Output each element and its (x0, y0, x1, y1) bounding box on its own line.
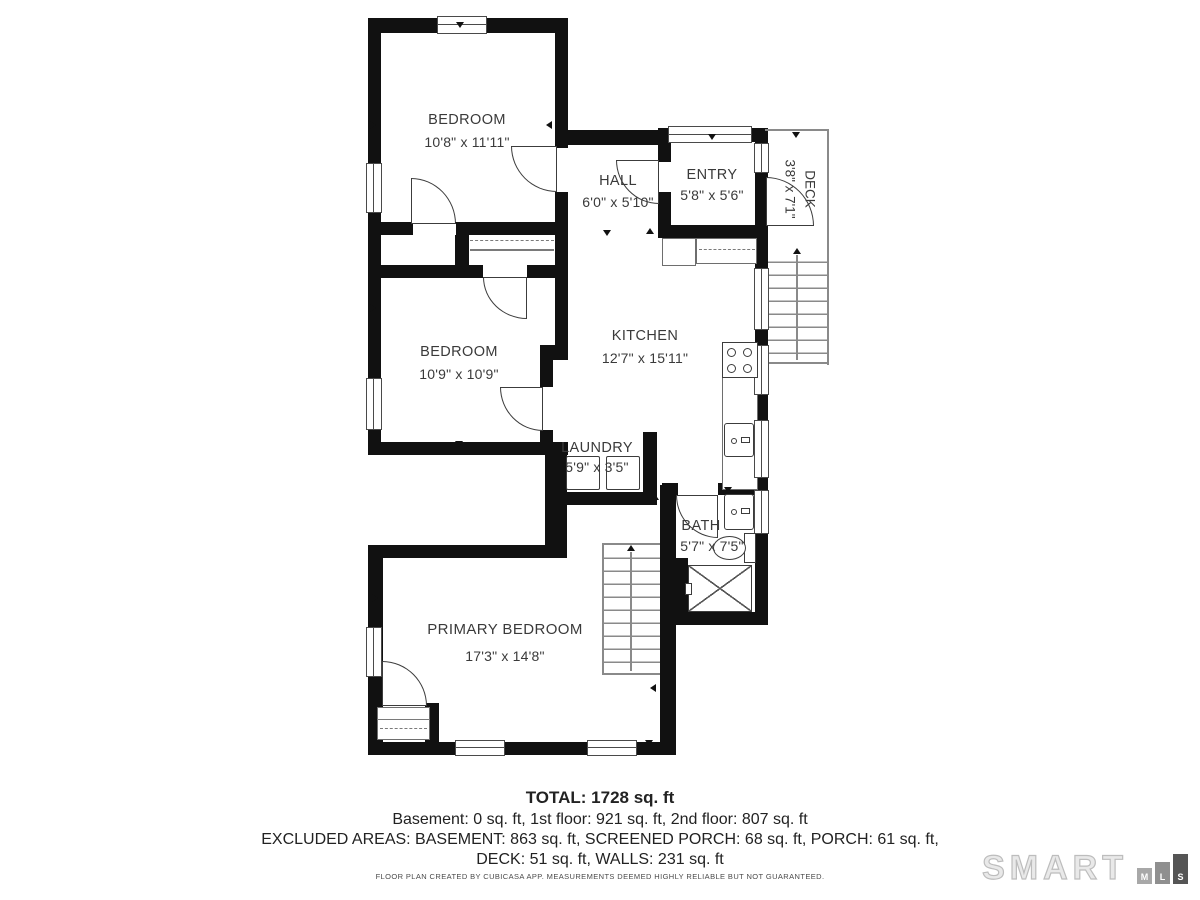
wall-segment (540, 360, 553, 387)
dimension-tick (708, 134, 716, 140)
closet-shelf-dashed (470, 240, 554, 241)
room-dims-primary: 17'3" x 14'8" (465, 649, 544, 663)
door-arc (382, 661, 427, 706)
window (366, 163, 382, 213)
dimension-tick (546, 121, 552, 129)
stairs-center-line (796, 255, 798, 360)
stove-burner (743, 348, 752, 357)
wall-segment (555, 18, 568, 148)
wall-segment (368, 222, 413, 235)
room-dims-bath: 5'7" x 7'5" (680, 539, 743, 553)
room-label-primary: PRIMARY BEDROOM (427, 622, 582, 637)
room-dims-kitchen: 12'7" x 15'11" (602, 351, 688, 365)
sink-fixture (741, 508, 750, 514)
cabinet-dashed-line (699, 249, 755, 250)
room-dims: 10'8" x 11'11" (424, 135, 509, 149)
room-name: BATH (681, 519, 720, 534)
room-dims: 17'3" x 14'8" (465, 649, 544, 663)
room-dims: 5'9" x 3'5" (565, 460, 628, 474)
wall-segment (368, 545, 567, 558)
interior-stairs (604, 546, 660, 673)
dimension-tick (645, 740, 653, 746)
dimension-tick (724, 487, 732, 493)
room-dims-bedroom1: 10'8" x 11'11" (424, 135, 509, 149)
room-name: HALL (599, 174, 637, 189)
room-name: KITCHEN (612, 329, 678, 344)
wall-segment (368, 265, 483, 278)
window (754, 143, 769, 173)
dimension-tick (603, 230, 611, 236)
window (366, 627, 382, 677)
dimension-tick (370, 121, 376, 129)
room-label-laundry: LAUNDRY (561, 441, 633, 456)
dimension-tick (650, 684, 656, 692)
room-label-entry: ENTRY (687, 168, 738, 183)
window (754, 268, 769, 330)
room-name: BEDROOM (428, 113, 506, 128)
logo-wordmark: SMART (982, 853, 1128, 884)
dimension-tick (456, 22, 464, 28)
room-dims-bedroom2: 10'9" x 10'9" (419, 367, 498, 381)
stairs-edge (602, 673, 660, 675)
closet-line (377, 719, 430, 720)
floor-areas: Basement: 0 sq. ft, 1st floor: 921 sq. f… (0, 811, 1200, 829)
wall-segment (455, 235, 469, 265)
floor-plan-page: BEDROOM 10'8" x 11'11" HALL 6'0" x 5'10"… (0, 0, 1200, 900)
wall-segment (662, 612, 768, 625)
logo-m-block: M (1137, 868, 1152, 884)
door-arc (511, 146, 557, 192)
room-dims-laundry: 5'9" x 3'5" (565, 460, 628, 474)
excluded-areas-line1: EXCLUDED AREAS: BASEMENT: 863 sq. ft, SC… (0, 831, 1200, 849)
room-label-bedroom2: BEDROOM (420, 345, 498, 360)
deck-outline (765, 129, 829, 131)
dimension-tick (455, 441, 463, 447)
room-dims: 5'7" x 7'5" (680, 539, 743, 553)
room-name: BEDROOM (420, 345, 498, 360)
logo-s-block: S (1173, 854, 1188, 884)
total-area: TOTAL: 1728 sq. ft (0, 788, 1200, 808)
sink-faucet (731, 438, 737, 444)
dimension-tick (792, 132, 800, 138)
stove (722, 342, 758, 378)
sink-fixture (741, 437, 750, 443)
wall-segment (527, 265, 568, 278)
room-label-hall: HALL (599, 174, 637, 189)
stairs-edge (768, 362, 829, 364)
stove-burner (727, 364, 736, 373)
room-dims: 3'8" x 7'1" (779, 159, 799, 218)
wall-segment (540, 345, 568, 360)
wall-segment (545, 492, 657, 505)
wall-segment (456, 222, 568, 235)
stairs-center-line (630, 552, 632, 671)
room-label-deck: DECK 3'8" x 7'1" (779, 159, 820, 218)
kitchen-cabinet (662, 238, 696, 266)
wall-segment (662, 483, 678, 495)
wall-segment (568, 130, 658, 145)
door-arc (483, 277, 527, 319)
room-dims: 12'7" x 15'11" (602, 351, 688, 365)
dimension-tick (372, 594, 378, 602)
wall-segment (368, 442, 568, 455)
room-label-bath: BATH (681, 519, 720, 534)
window (754, 420, 769, 478)
closet-rod-line (470, 249, 554, 251)
window (754, 490, 769, 534)
deck-outline (827, 129, 829, 365)
window (455, 740, 505, 756)
room-dims-entry: 5'8" x 5'6" (680, 188, 743, 202)
primary-closet (377, 707, 430, 740)
room-dims: 10'9" x 10'9" (419, 367, 498, 381)
stove-burner (743, 364, 752, 373)
logo-l-block: L (1155, 862, 1170, 884)
stove-burner (727, 348, 736, 357)
stairs-up-arrow (627, 545, 635, 551)
dimension-tick (646, 228, 654, 234)
closet-dashed-line (380, 728, 427, 729)
stairs-up-arrow (793, 248, 801, 254)
sink-faucet (731, 509, 737, 515)
room-dims: 6'0" x 5'10" (582, 195, 653, 209)
shower-valve (685, 583, 692, 595)
dimension-tick (455, 222, 463, 228)
room-dims-hall: 6'0" x 5'10" (582, 195, 653, 209)
room-label-bedroom1: BEDROOM (428, 113, 506, 128)
room-name: LAUNDRY (561, 441, 633, 456)
room-label-kitchen: KITCHEN (612, 329, 678, 344)
dimension-tick (370, 304, 376, 312)
room-name: DECK (799, 159, 819, 218)
window (587, 740, 637, 756)
room-name: ENTRY (687, 168, 738, 183)
dimension-tick (457, 266, 465, 272)
smart-mls-logo: SMART M L S (982, 853, 1188, 884)
dimension-tick (651, 494, 659, 500)
window (366, 378, 382, 430)
door-arc (500, 387, 543, 431)
dimension-tick (708, 226, 716, 232)
room-name: PRIMARY BEDROOM (427, 622, 582, 637)
kitchen-cabinet (696, 238, 757, 264)
room-dims: 5'8" x 5'6" (680, 188, 743, 202)
door-arc (411, 178, 456, 224)
shower (688, 565, 752, 612)
